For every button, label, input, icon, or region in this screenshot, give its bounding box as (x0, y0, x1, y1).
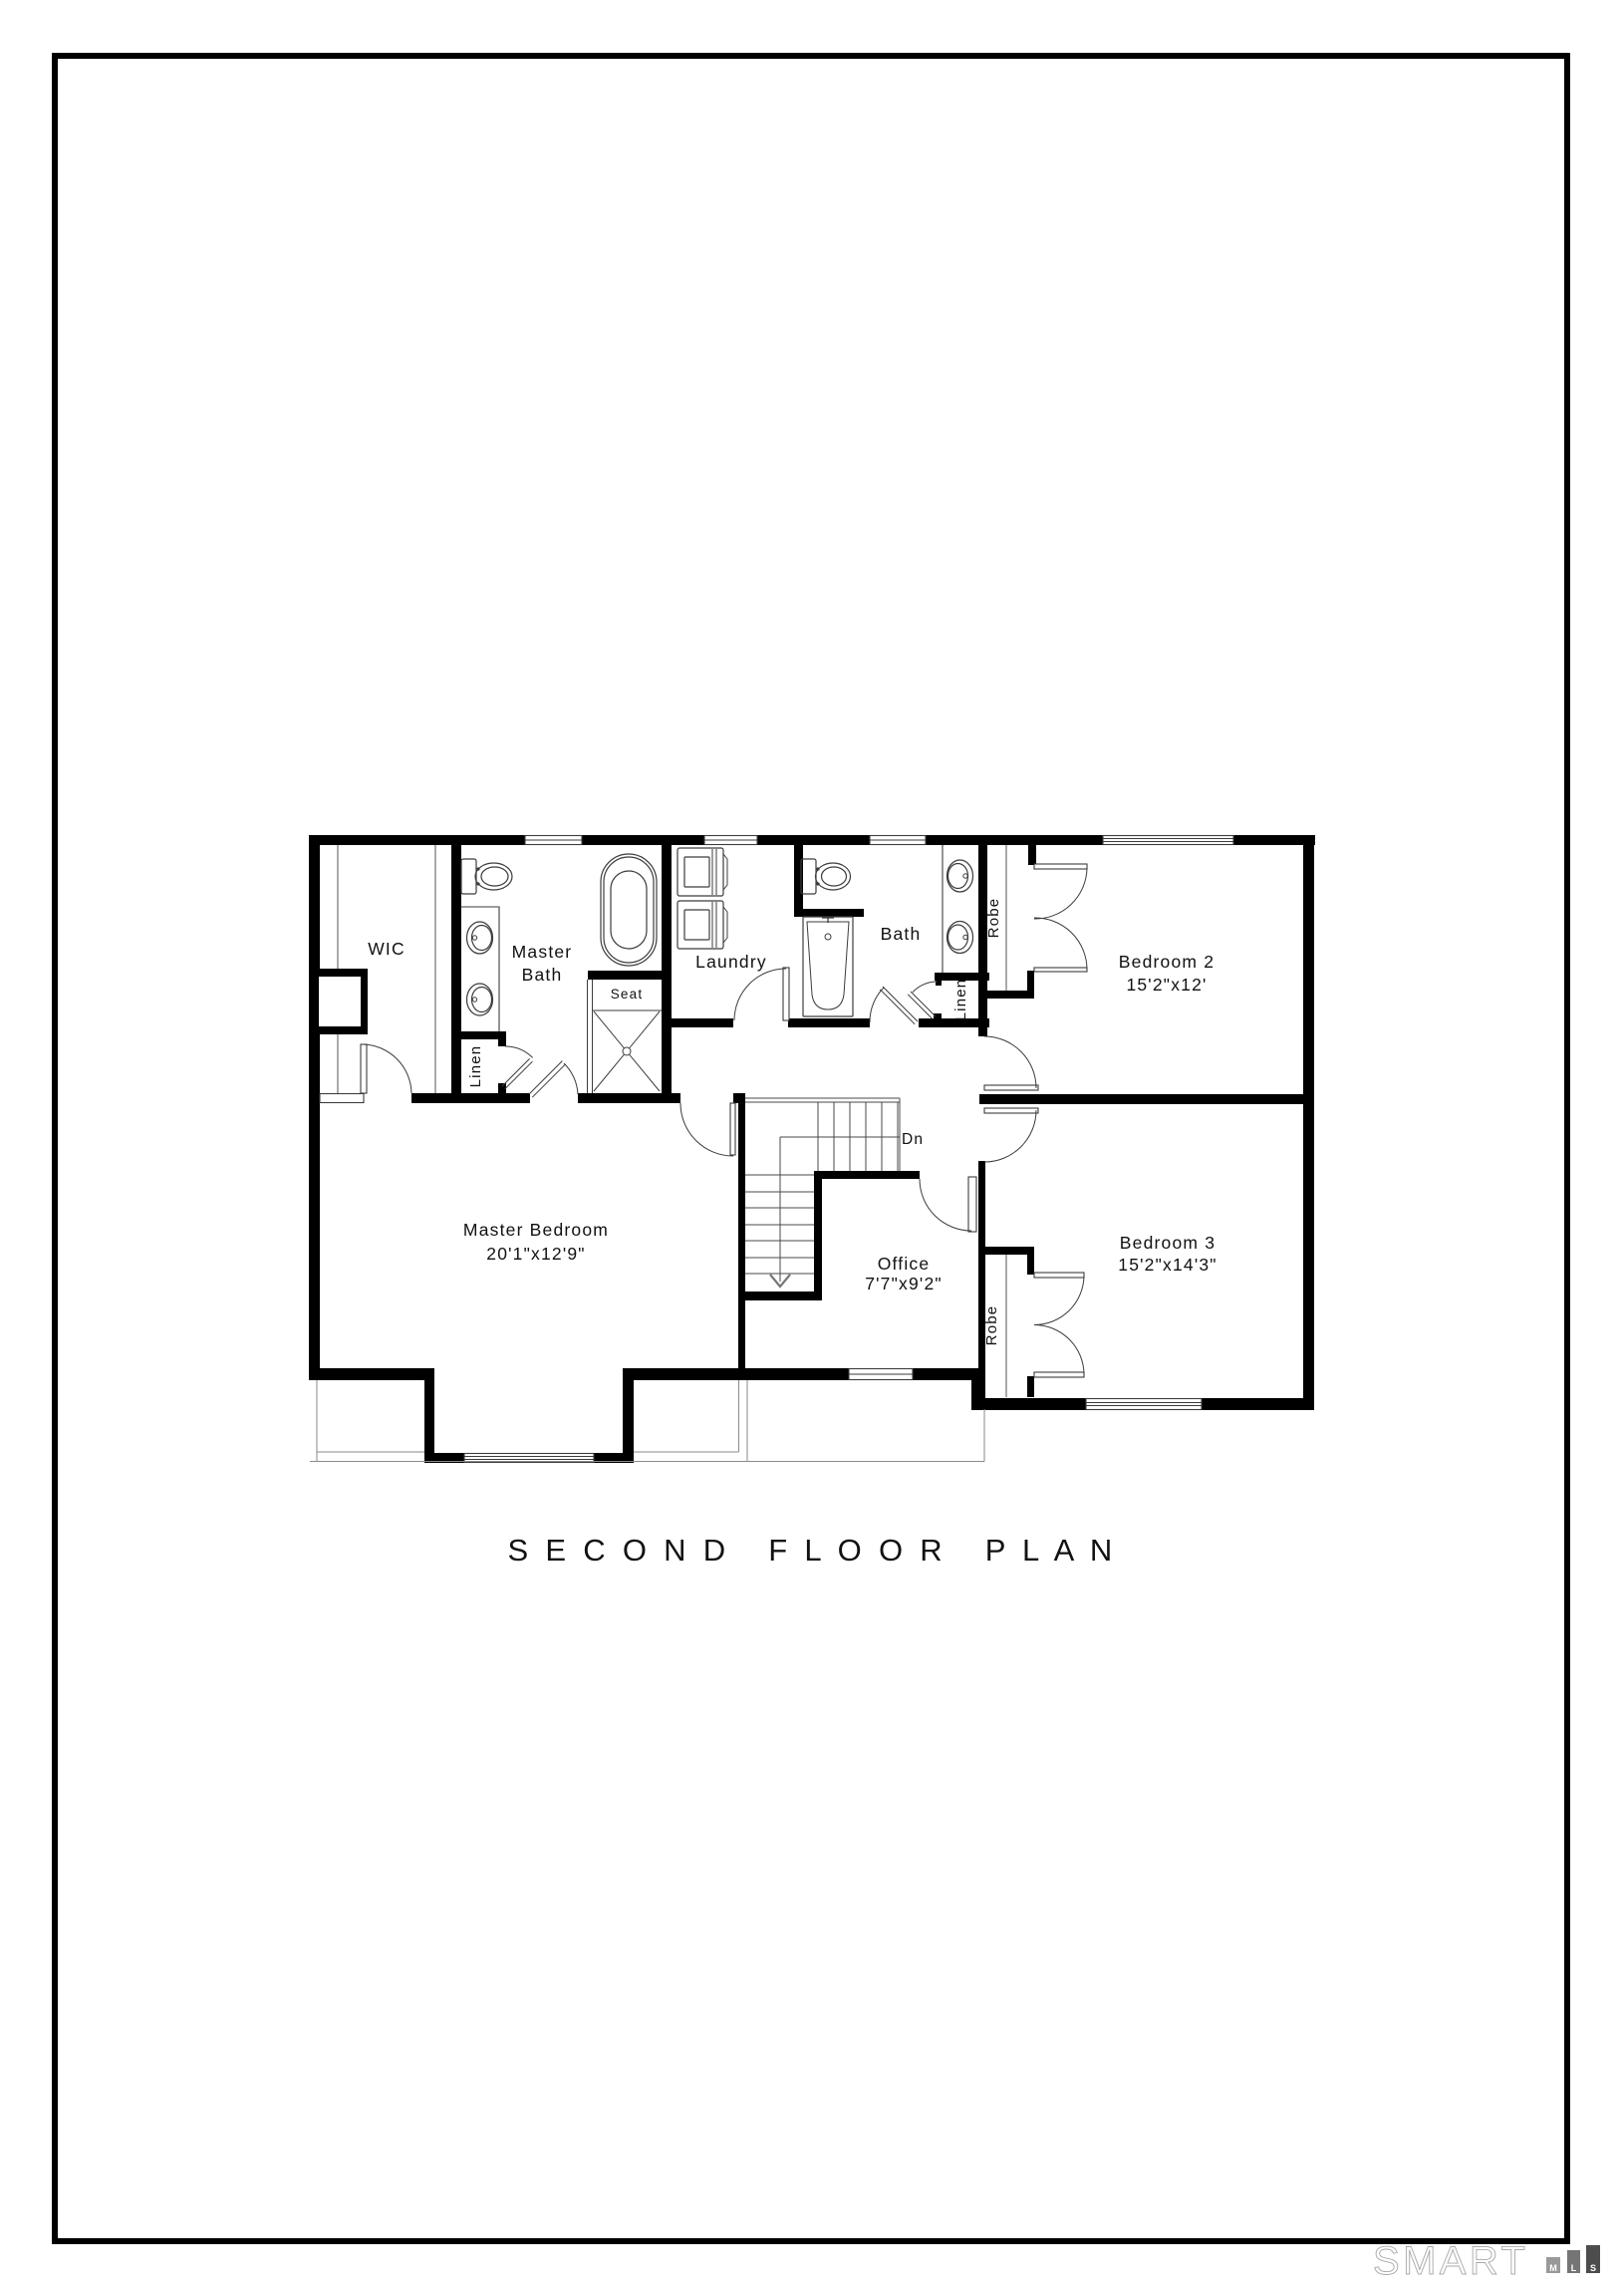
svg-text:S E C O N D F L O O R P L: S E C O N D F L O O R P L A N (507, 1533, 1116, 1568)
svg-text:20'1"x12'9": 20'1"x12'9" (486, 1244, 585, 1264)
svg-text:S: S (1590, 2263, 1596, 2273)
svg-text:7'7"x9'2": 7'7"x9'2" (865, 1274, 943, 1293)
svg-text:Robe: Robe (983, 1305, 1000, 1346)
svg-text:Linen: Linen (952, 979, 969, 1021)
svg-text:L: L (1571, 2263, 1577, 2273)
svg-text:Master Bedroom: Master Bedroom (463, 1220, 609, 1240)
svg-text:15'2"x14'3": 15'2"x14'3" (1118, 1255, 1217, 1275)
svg-text:Linen: Linen (467, 1045, 484, 1088)
svg-text:Robe: Robe (985, 898, 1002, 939)
svg-text:WIC: WIC (368, 939, 406, 959)
svg-text:Bedroom 2: Bedroom 2 (1119, 952, 1215, 972)
svg-text:Bedroom 3: Bedroom 3 (1120, 1233, 1216, 1253)
svg-text:SMART: SMART (1373, 2239, 1528, 2283)
svg-text:Master: Master (512, 942, 573, 962)
svg-text:Laundry: Laundry (695, 952, 767, 972)
svg-text:Bath: Bath (522, 965, 563, 985)
svg-text:Seat: Seat (611, 987, 644, 1002)
svg-text:15'2"x12': 15'2"x12' (1126, 975, 1207, 995)
svg-text:Bath: Bath (881, 924, 922, 944)
svg-text:Office: Office (878, 1254, 931, 1274)
svg-text:M: M (1549, 2263, 1557, 2273)
svg-text:Dn: Dn (902, 1131, 924, 1148)
